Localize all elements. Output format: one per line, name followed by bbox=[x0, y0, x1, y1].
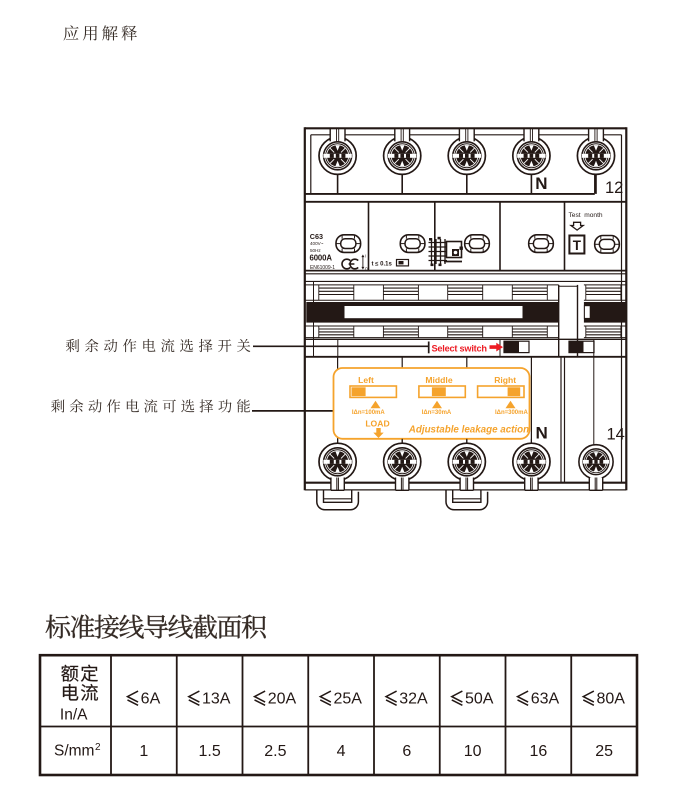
svg-text:10: 10 bbox=[464, 743, 482, 760]
svg-text:Right: Right bbox=[494, 375, 516, 385]
svg-text:Test month: Test month bbox=[569, 212, 603, 219]
svg-text:Left: Left bbox=[358, 375, 374, 385]
svg-text:Adjustable leakage action: Adjustable leakage action bbox=[408, 424, 529, 435]
svg-text:6A: 6A bbox=[141, 691, 161, 708]
svg-text:63A: 63A bbox=[531, 691, 560, 708]
svg-text:In/A: In/A bbox=[60, 706, 88, 723]
svg-text:6000A: 6000A bbox=[310, 254, 333, 263]
svg-text:Select switch: Select switch bbox=[432, 343, 488, 353]
svg-text:1.5: 1.5 bbox=[199, 743, 221, 760]
svg-text:IΔn=30mA: IΔn=30mA bbox=[422, 410, 452, 416]
svg-text:4: 4 bbox=[337, 743, 346, 760]
svg-text:EN61009-1: EN61009-1 bbox=[310, 265, 335, 271]
svg-text:6: 6 bbox=[402, 743, 411, 760]
svg-text:25: 25 bbox=[595, 743, 613, 760]
svg-text:I: I bbox=[365, 254, 366, 259]
svg-text:400V~: 400V~ bbox=[310, 241, 324, 246]
svg-text:S/mm: S/mm bbox=[54, 743, 94, 760]
svg-text:16: 16 bbox=[529, 743, 547, 760]
svg-text:20A: 20A bbox=[268, 691, 297, 708]
svg-text:13A: 13A bbox=[202, 691, 231, 708]
svg-text:Middle: Middle bbox=[425, 375, 452, 385]
svg-text:14: 14 bbox=[607, 425, 625, 443]
svg-text:N: N bbox=[536, 423, 548, 442]
svg-text:32A: 32A bbox=[399, 691, 428, 708]
svg-text:25A: 25A bbox=[333, 691, 362, 708]
svg-text:t ≤ 0.1s: t ≤ 0.1s bbox=[372, 261, 393, 267]
svg-text:2.5: 2.5 bbox=[264, 743, 286, 760]
svg-text:50A: 50A bbox=[465, 691, 494, 708]
svg-text:LOAD: LOAD bbox=[365, 419, 389, 429]
svg-text:2: 2 bbox=[95, 742, 101, 753]
svg-text:1: 1 bbox=[139, 743, 148, 760]
svg-text:IΔn=100mA: IΔn=100mA bbox=[352, 410, 385, 416]
svg-text:N: N bbox=[535, 174, 547, 193]
svg-text:50Hz: 50Hz bbox=[310, 248, 321, 253]
svg-text:12: 12 bbox=[605, 179, 623, 197]
svg-text:T: T bbox=[573, 238, 582, 253]
svg-text:80A: 80A bbox=[596, 691, 625, 708]
svg-text:IΔn=300mA: IΔn=300mA bbox=[495, 410, 528, 416]
